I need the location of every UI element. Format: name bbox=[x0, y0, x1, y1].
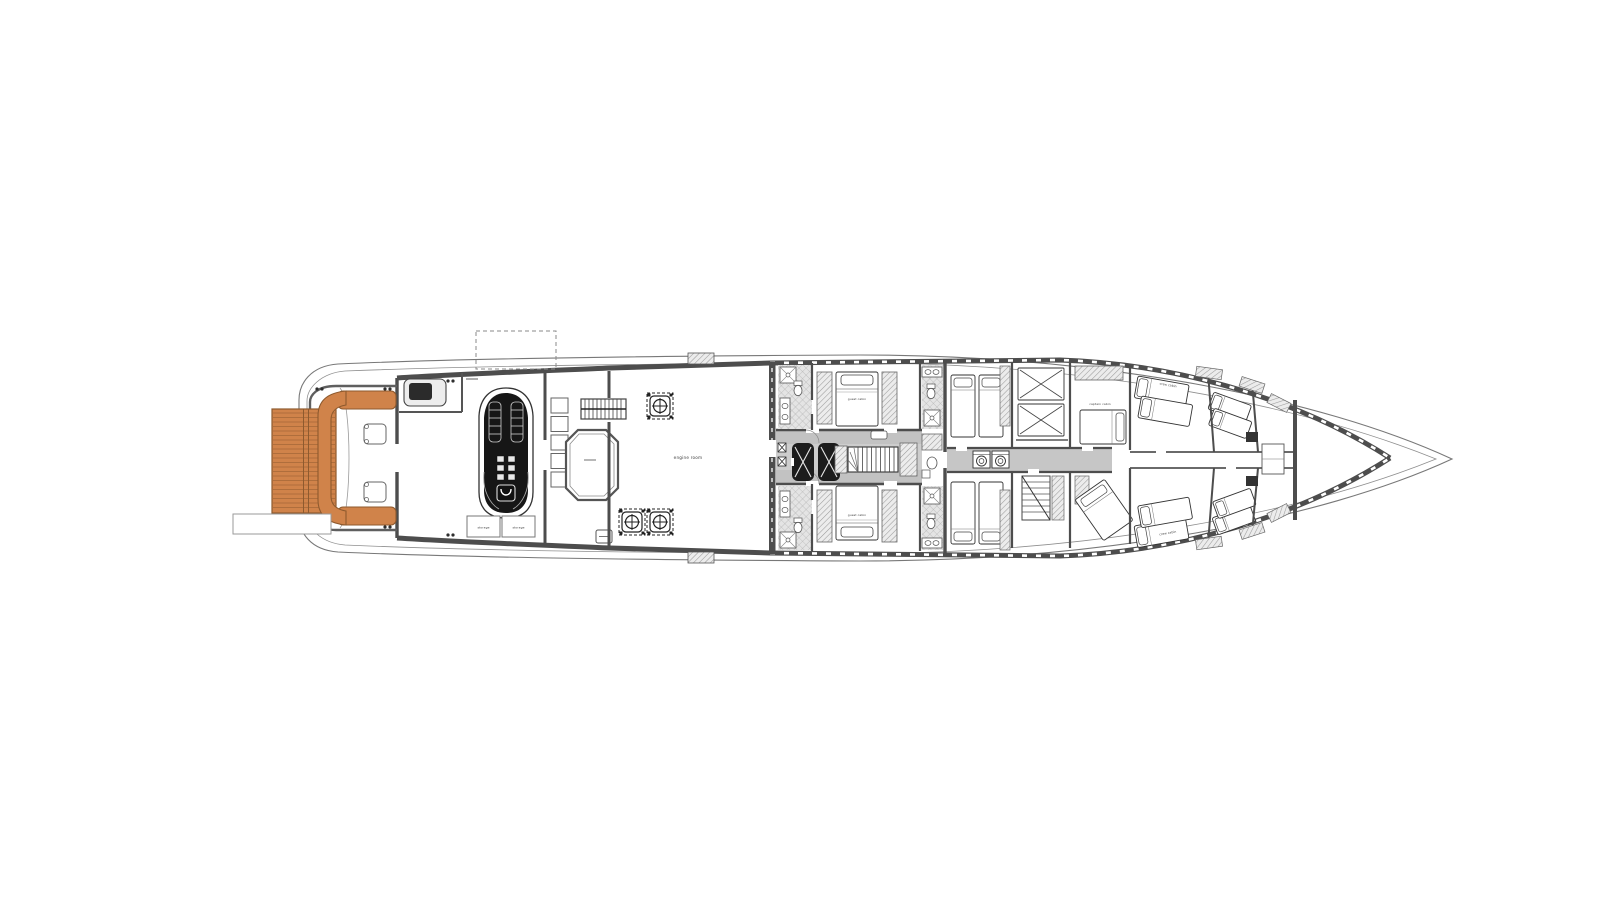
pullman-bunk bbox=[1018, 404, 1064, 436]
sink bbox=[922, 538, 942, 548]
engine-room-label: engine room bbox=[674, 455, 703, 460]
vanity bbox=[780, 491, 790, 517]
stair-landing-fwd bbox=[900, 443, 917, 476]
stair-landing-aft bbox=[835, 446, 847, 473]
passerelle bbox=[233, 514, 331, 534]
guest-cabin-label: guest cabin bbox=[848, 397, 867, 401]
crew-corridor-floor bbox=[947, 448, 1112, 472]
wardrobe bbox=[1075, 366, 1123, 380]
wardrobe bbox=[882, 372, 897, 424]
engine-mount bbox=[647, 509, 673, 535]
washer bbox=[973, 451, 990, 468]
berth bbox=[979, 482, 1003, 544]
captain-bed bbox=[1080, 410, 1126, 444]
lobby-seat bbox=[791, 443, 814, 481]
deck-plan-drawing: storage storage bbox=[0, 0, 1600, 900]
crew-cabin-bottom bbox=[951, 482, 1010, 550]
locker bbox=[1000, 490, 1010, 550]
tender-boat bbox=[479, 388, 533, 518]
staircase-up bbox=[581, 399, 626, 419]
sink bbox=[922, 367, 942, 377]
tender-engine bbox=[497, 485, 515, 501]
toilet bbox=[794, 518, 802, 533]
yacht-deck-plan-page: storage storage bbox=[0, 0, 1600, 900]
crew-cabin-top bbox=[951, 366, 1010, 437]
shower bbox=[780, 367, 796, 383]
engine-mount bbox=[647, 393, 673, 419]
bulkhead-door bbox=[768, 440, 777, 457]
storage-label: storage bbox=[512, 526, 524, 530]
vanity bbox=[780, 398, 790, 424]
stair-void bbox=[1052, 476, 1064, 520]
guest-cabin-label: guest cabin bbox=[848, 513, 867, 517]
pullman-bunk bbox=[1018, 368, 1064, 400]
wardrobe bbox=[817, 372, 832, 424]
captain-cabin-label: captain cabin bbox=[1089, 402, 1111, 406]
day-head-fixture bbox=[927, 457, 937, 469]
toilet bbox=[927, 384, 935, 399]
wardrobe bbox=[882, 490, 897, 542]
side-vent-top bbox=[688, 353, 714, 364]
dryer bbox=[992, 451, 1009, 468]
shower bbox=[924, 488, 940, 504]
crew-staircase bbox=[1022, 476, 1064, 520]
shower bbox=[924, 410, 940, 426]
console-table bbox=[871, 431, 887, 439]
side-vent-bottom bbox=[688, 552, 714, 563]
closet bbox=[922, 434, 942, 450]
pullman-cabin bbox=[1016, 368, 1068, 440]
shower bbox=[780, 532, 796, 548]
toilet bbox=[927, 514, 935, 529]
storage-label: storage bbox=[477, 526, 489, 530]
engine-mount bbox=[619, 509, 645, 535]
locker bbox=[1000, 366, 1010, 426]
berth bbox=[979, 375, 1003, 437]
wardrobe bbox=[817, 490, 832, 542]
berth bbox=[951, 375, 975, 437]
berth bbox=[951, 482, 975, 544]
toilet bbox=[794, 381, 802, 396]
